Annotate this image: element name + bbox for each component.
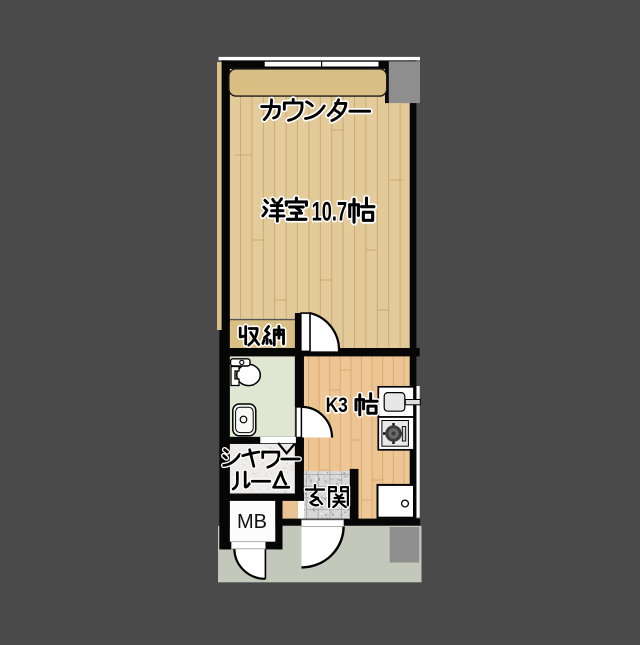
svg-text:MB: MB (237, 511, 267, 533)
svg-text:K3: K3 (326, 394, 348, 417)
svg-text:10.7: 10.7 (312, 197, 348, 227)
